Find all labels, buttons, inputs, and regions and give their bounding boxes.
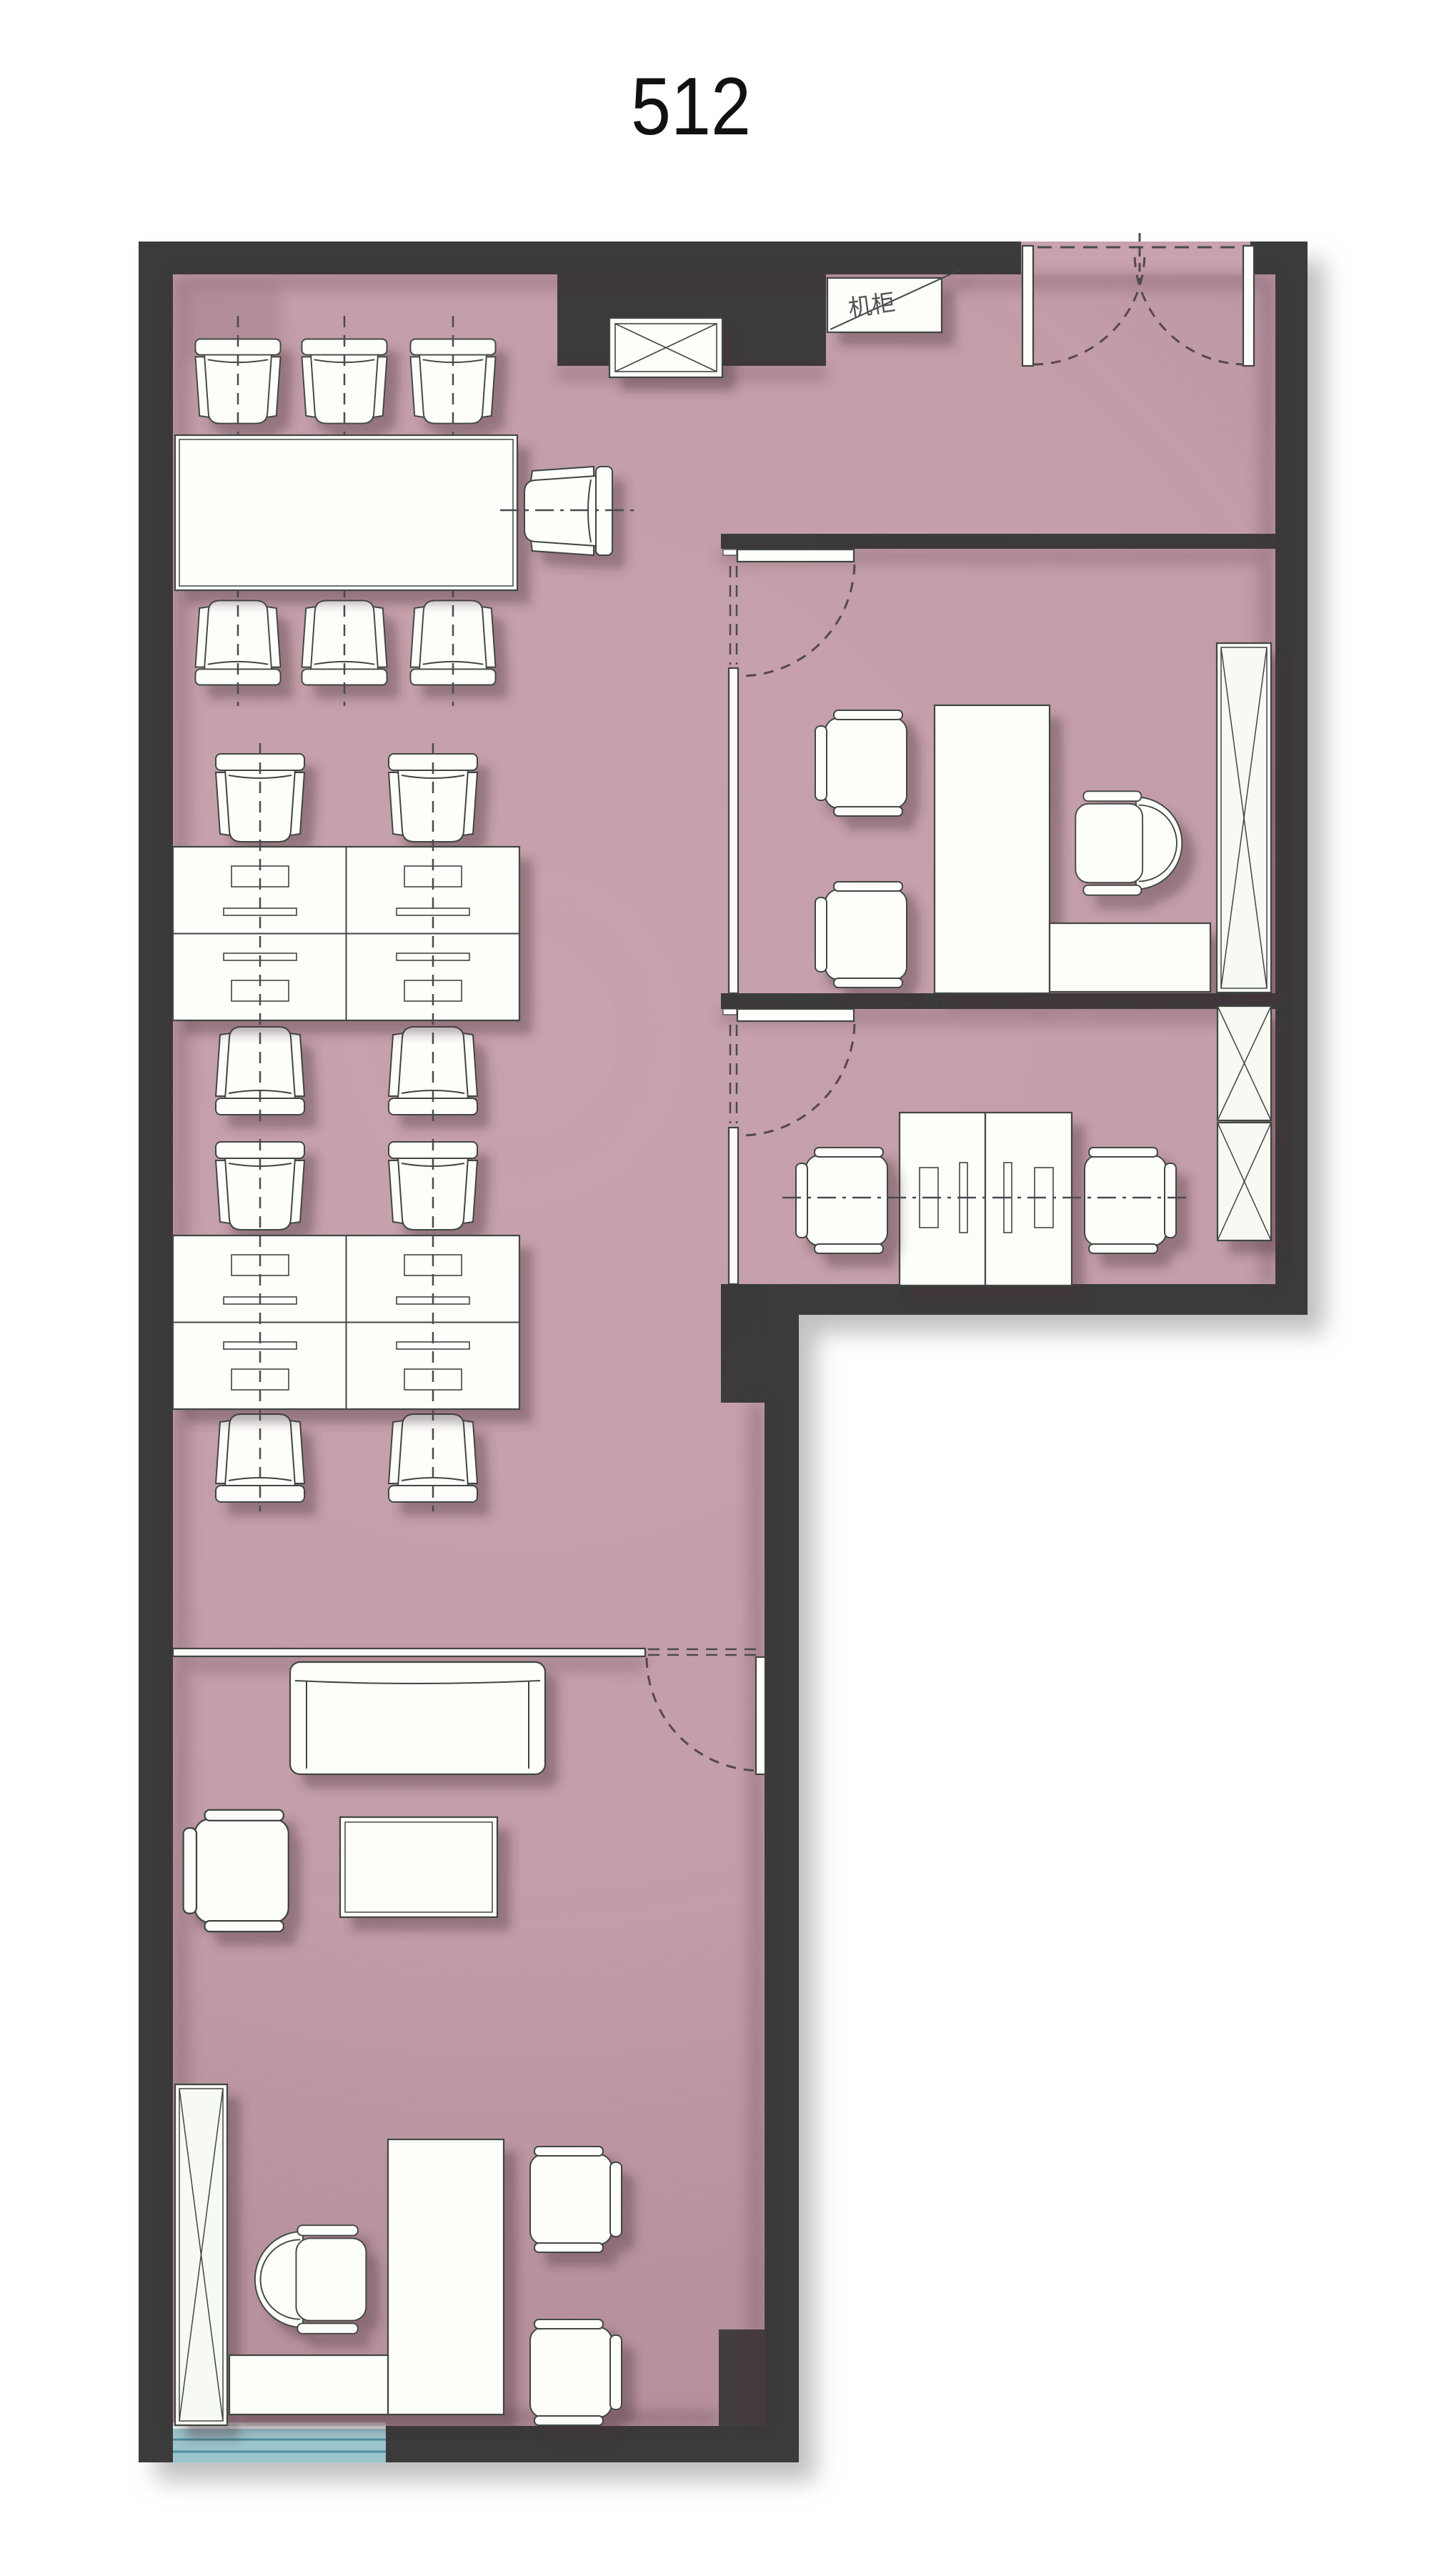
- svg-text:512: 512: [631, 61, 751, 152]
